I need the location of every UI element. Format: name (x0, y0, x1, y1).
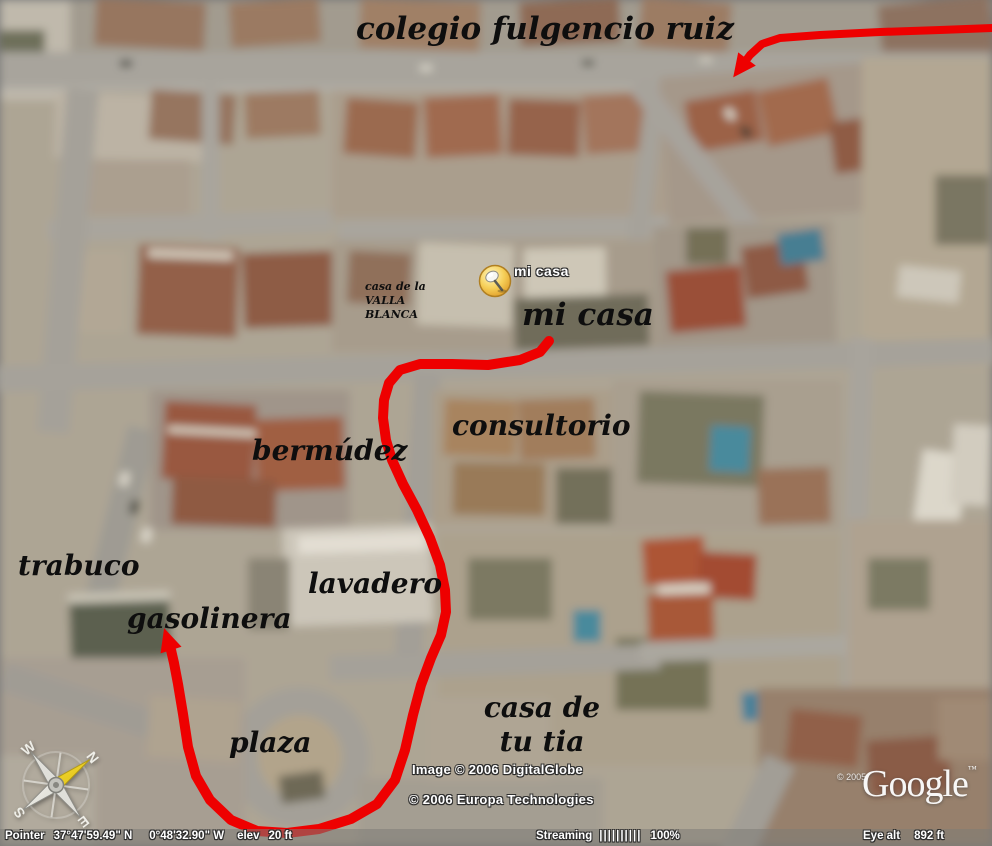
compass-rose-icon[interactable]: N E S W (2, 731, 110, 839)
label-casa-valla-line3: BLANCA (365, 308, 455, 322)
label-casa-tia-line2: tu tia (462, 725, 622, 759)
pointer-latitude: 37°47'59.49" N (54, 830, 133, 842)
placemark-mi-casa[interactable]: mi casa (478, 262, 598, 306)
label-casa-valla-blanca: casa de la VALLA BLANCA (365, 280, 455, 322)
label-lavadero: lavadero (308, 569, 442, 598)
attribution-digitalglobe: Image © 2006 DigitalGlobe (412, 762, 583, 777)
label-casa-valla-line2: VALLA (365, 294, 455, 308)
eye-altitude: Eye alt892 ft (863, 830, 944, 842)
label-bermudez: bermúdez (252, 436, 407, 465)
streaming-status: Streaming||||||||||100% (536, 830, 680, 842)
placemark-label: mi casa (514, 263, 569, 279)
streaming-label: Streaming (536, 830, 592, 842)
label-trabuco: trabuco (18, 551, 140, 580)
trademark-glyph: ™ (968, 764, 977, 774)
elevation-value: 20 ft (268, 830, 292, 842)
pushpin-icon[interactable] (478, 262, 514, 302)
pointer-longitude: 0°48'32.90" W (149, 830, 224, 842)
streaming-progress-bars: |||||||||| (599, 830, 641, 842)
label-consultorio: consultorio (452, 411, 631, 440)
label-casa-valla-line1: casa de la (365, 280, 455, 294)
eye-alt-value: 892 ft (914, 830, 944, 842)
label-casa-tia-line1: casa de (462, 691, 622, 725)
label-casa-de-tu-tia: casa de tu tia (462, 691, 622, 759)
google-earth-map-view[interactable]: colegio fulgencio ruiz casa de la VALLA … (0, 0, 992, 846)
status-bar: Pointer37°47'59.49" N0°48'32.90" Welev20… (0, 829, 992, 846)
label-plaza: plaza (229, 728, 311, 757)
pointer-label: Pointer (5, 830, 45, 842)
google-logo: Google™ (862, 762, 977, 806)
attribution-europa: © 2006 Europa Technologies (409, 792, 594, 807)
label-colegio: colegio fulgencio ruiz (356, 13, 734, 46)
streaming-percent: 100% (650, 830, 679, 842)
eye-alt-label: Eye alt (863, 830, 900, 842)
compass-w: W (18, 737, 39, 758)
elevation-label: elev (237, 830, 259, 842)
pointer-coordinates: Pointer37°47'59.49" N0°48'32.90" Welev20… (5, 830, 292, 842)
label-gasolinera: gasolinera (127, 604, 292, 633)
